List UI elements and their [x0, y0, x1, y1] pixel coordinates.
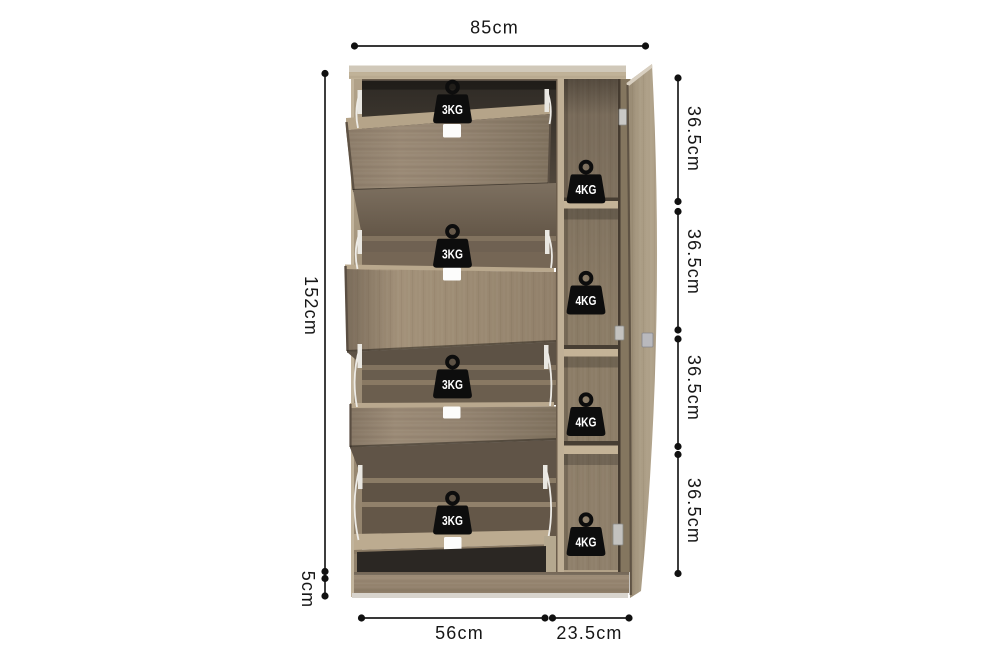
svg-text:36.5cm: 36.5cm [684, 478, 704, 544]
svg-text:3KG: 3KG [442, 102, 463, 117]
svg-text:152cm: 152cm [301, 276, 321, 336]
svg-text:3KG: 3KG [442, 377, 463, 392]
svg-text:5cm: 5cm [298, 571, 318, 609]
svg-text:36.5cm: 36.5cm [684, 229, 704, 295]
svg-text:23.5cm: 23.5cm [556, 623, 622, 643]
svg-text:3KG: 3KG [442, 513, 463, 528]
svg-text:85cm: 85cm [470, 18, 519, 38]
svg-text:56cm: 56cm [435, 623, 484, 643]
svg-text:4KG: 4KG [576, 182, 597, 197]
svg-text:36.5cm: 36.5cm [684, 106, 704, 172]
svg-text:4KG: 4KG [576, 293, 597, 308]
svg-text:4KG: 4KG [576, 535, 597, 550]
svg-text:3KG: 3KG [442, 246, 463, 261]
svg-text:4KG: 4KG [576, 415, 597, 430]
svg-text:36.5cm: 36.5cm [684, 355, 704, 421]
